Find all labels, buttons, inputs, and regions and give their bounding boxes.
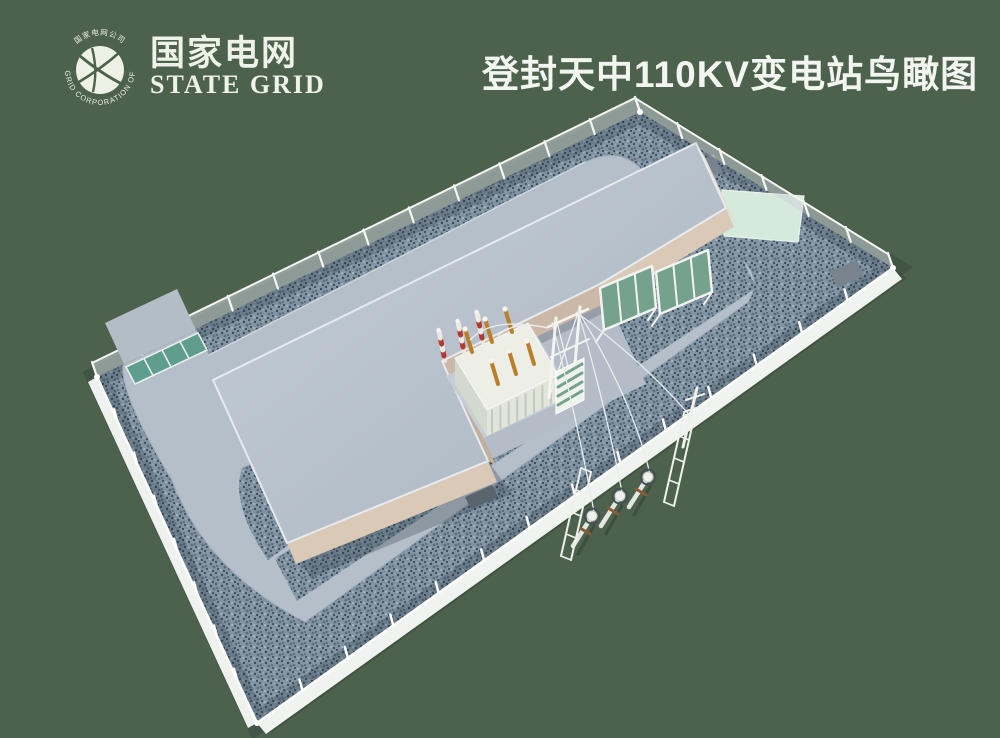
arrester-cap <box>455 319 459 323</box>
bushing-cap <box>524 338 529 343</box>
corner-post <box>94 374 100 380</box>
corner-post <box>254 720 260 726</box>
substation-rendering <box>0 0 1000 738</box>
arrester-cap <box>436 328 440 332</box>
bushing-cap <box>506 348 511 353</box>
corner-post <box>890 265 896 271</box>
bushing-cap <box>502 306 507 311</box>
surge-arrester <box>458 323 459 329</box>
bushing-cap <box>488 358 493 363</box>
pole-cap <box>587 511 597 521</box>
arrester-cap <box>474 310 478 314</box>
bushing-cap <box>462 326 467 331</box>
surge-arrester <box>439 332 440 338</box>
corner-post <box>637 109 643 115</box>
pole-cap <box>643 472 653 482</box>
page: 国家电网公司 STATE GRID CORPORATION OF CHINA 国… <box>0 0 1000 738</box>
pole-cap <box>615 491 625 501</box>
bushing-cap <box>482 316 487 321</box>
surge-arrester <box>477 314 478 320</box>
